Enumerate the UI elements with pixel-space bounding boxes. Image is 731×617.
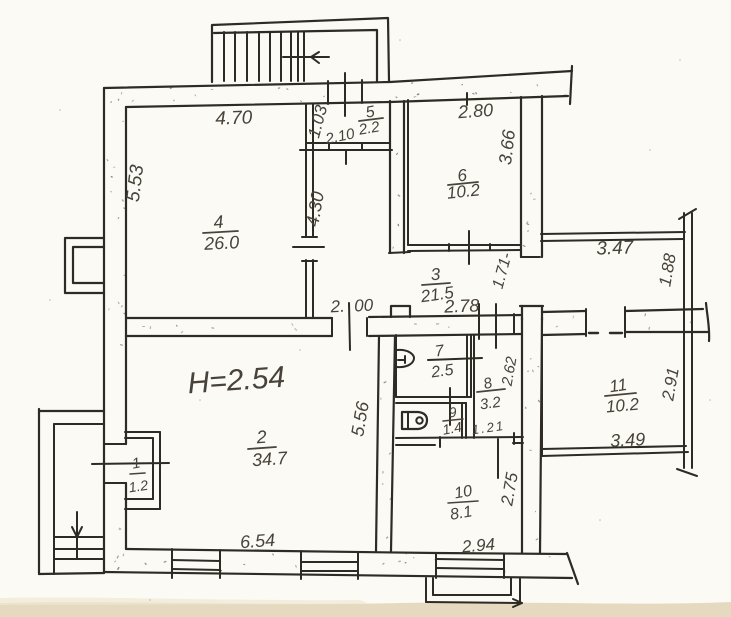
svg-text:3.2: 3.2 xyxy=(479,394,503,414)
svg-text:H=2.54: H=2.54 xyxy=(187,361,287,401)
svg-text:2.5: 2.5 xyxy=(429,362,454,382)
svg-text:6.54: 6.54 xyxy=(239,530,275,552)
svg-text:2.80: 2.80 xyxy=(456,100,493,122)
svg-text:2.94: 2.94 xyxy=(460,535,496,557)
svg-text:26.0: 26.0 xyxy=(203,232,240,254)
svg-text:2.: 2. xyxy=(329,297,345,317)
svg-text:11: 11 xyxy=(608,375,628,396)
svg-text:3.49: 3.49 xyxy=(610,429,646,451)
svg-text:4.70: 4.70 xyxy=(215,107,253,129)
svg-text:2: 2 xyxy=(255,427,267,448)
svg-text:34.7: 34.7 xyxy=(251,448,288,470)
svg-text:9: 9 xyxy=(448,404,457,421)
svg-text:1.4: 1.4 xyxy=(441,418,463,437)
svg-text:2.78: 2.78 xyxy=(443,295,480,316)
svg-text:10.2: 10.2 xyxy=(605,395,640,417)
svg-text:4: 4 xyxy=(213,212,225,233)
svg-text:1.2: 1.2 xyxy=(128,477,150,496)
svg-text:10: 10 xyxy=(453,483,474,503)
svg-text:3.47: 3.47 xyxy=(596,237,635,259)
svg-text:10.2: 10.2 xyxy=(446,180,481,202)
svg-text:00: 00 xyxy=(354,295,374,315)
